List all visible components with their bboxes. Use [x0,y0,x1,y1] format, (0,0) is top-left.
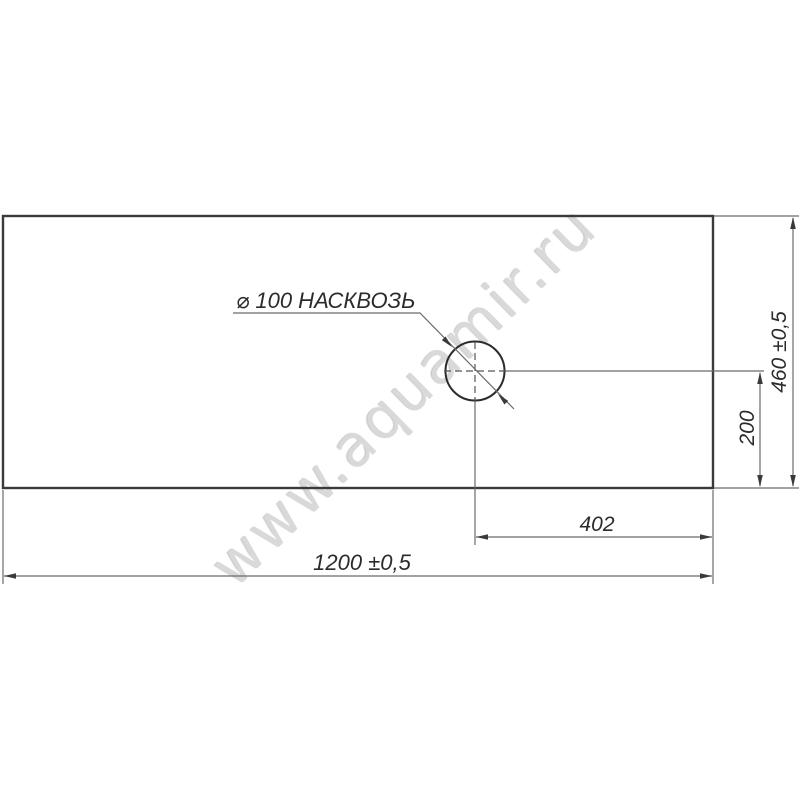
offset-right-dim-label: 402 [579,513,614,536]
drawing-canvas: ⌀ 100 НАСКВОЗЬ 460 ±0,5 200 402 1200 ±0,… [0,0,800,800]
height-dim-label: 460 ±0,5 [768,311,791,393]
height-arrow-bottom-icon [790,475,796,487]
width-arrow-right-icon [700,573,712,578]
hole-arrow-upper-icon [442,337,452,348]
hole-label: ⌀ 100 НАСКВОЗЬ [236,288,415,313]
height-arrow-top-icon [790,217,796,229]
width-dim-label: 1200 ±0,5 [313,550,411,575]
offset-bottom-arrow-bottom-icon [757,475,763,487]
width-arrow-left-icon [4,573,16,578]
offset-bottom-dim-label: 200 [736,410,759,446]
offset-bottom-arrow-top-icon [757,372,763,384]
offset-right-arrow-left-icon [476,534,488,539]
technical-drawing-page: www.aquamir.ru ⌀ 100 НАСКВОЗЬ 460 ±0,5 2… [0,0,800,800]
offset-right-arrow-right-icon [700,534,712,539]
hole-leader-line [233,313,514,409]
hole-arrow-lower-icon [498,394,508,405]
panel-outline [3,216,713,488]
